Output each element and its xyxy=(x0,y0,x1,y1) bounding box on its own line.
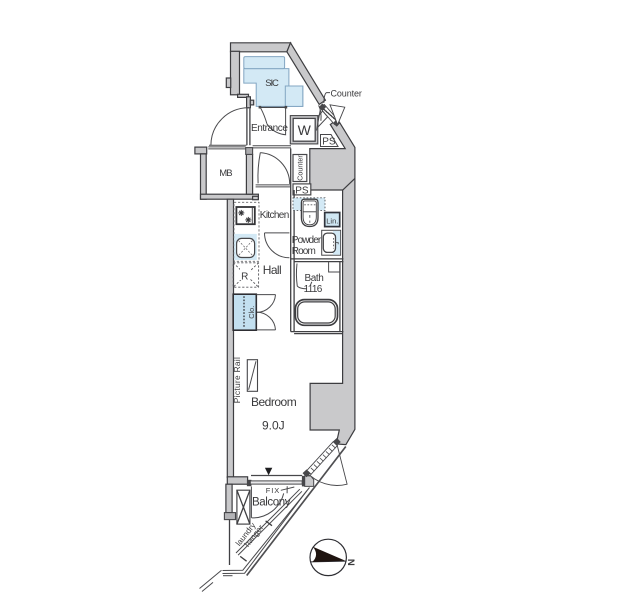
svg-text:PS: PS xyxy=(322,136,336,147)
svg-text:R: R xyxy=(241,271,248,282)
svg-text:PS: PS xyxy=(295,185,309,196)
svg-text:SIC: SIC xyxy=(265,78,279,89)
svg-text:Powder: Powder xyxy=(292,235,322,246)
svg-text:Lin.: Lin. xyxy=(326,217,338,226)
svg-text:Counter: Counter xyxy=(331,89,362,99)
svg-text:Balcony: Balcony xyxy=(252,497,291,509)
svg-text:Room: Room xyxy=(292,246,316,257)
svg-text:Kitchen: Kitchen xyxy=(260,210,289,221)
svg-text:FIX: FIX xyxy=(266,486,280,495)
svg-text:W: W xyxy=(298,122,312,138)
svg-text:N: N xyxy=(345,559,356,566)
svg-text:9.0J: 9.0J xyxy=(262,419,285,433)
svg-text:Hall: Hall xyxy=(263,263,281,277)
svg-text:Entrance: Entrance xyxy=(251,123,288,134)
svg-text:Counter: Counter xyxy=(295,155,304,181)
svg-text:MB: MB xyxy=(219,168,232,179)
svg-text:Bedroom: Bedroom xyxy=(251,395,297,409)
svg-text:Picture Rail: Picture Rail xyxy=(232,357,242,403)
svg-text:Bath: Bath xyxy=(305,273,324,284)
svg-text:Clo.: Clo. xyxy=(247,306,256,319)
svg-text:1116: 1116 xyxy=(304,284,323,295)
